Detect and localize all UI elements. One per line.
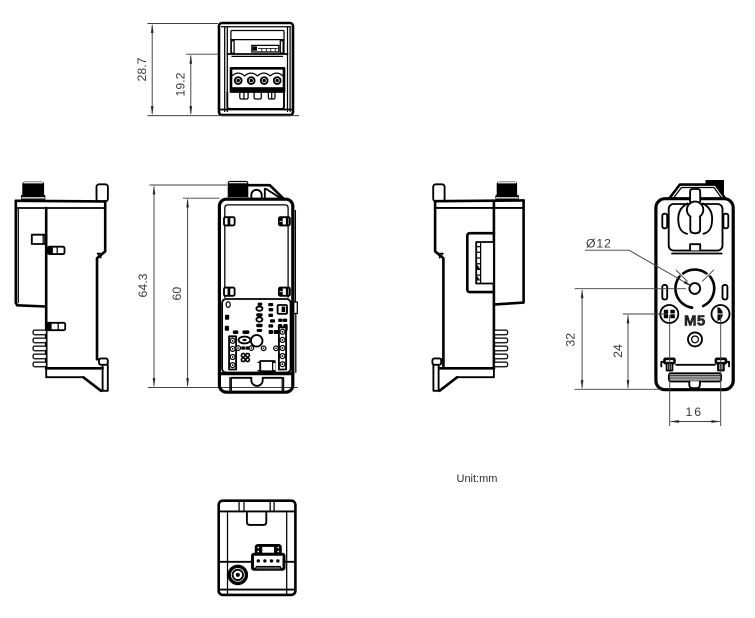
svg-text:Unit:mm: Unit:mm (457, 473, 498, 485)
svg-text:32: 32 (564, 333, 578, 347)
svg-text:16: 16 (685, 405, 703, 419)
svg-text:19.2: 19.2 (174, 72, 188, 96)
svg-text:60: 60 (170, 287, 184, 301)
svg-text:64.3: 64.3 (136, 273, 150, 297)
svg-text:24: 24 (611, 344, 625, 358)
svg-text:M5: M5 (684, 313, 706, 330)
svg-text:Ø12: Ø12 (586, 237, 612, 251)
svg-text:28.7: 28.7 (135, 57, 149, 81)
